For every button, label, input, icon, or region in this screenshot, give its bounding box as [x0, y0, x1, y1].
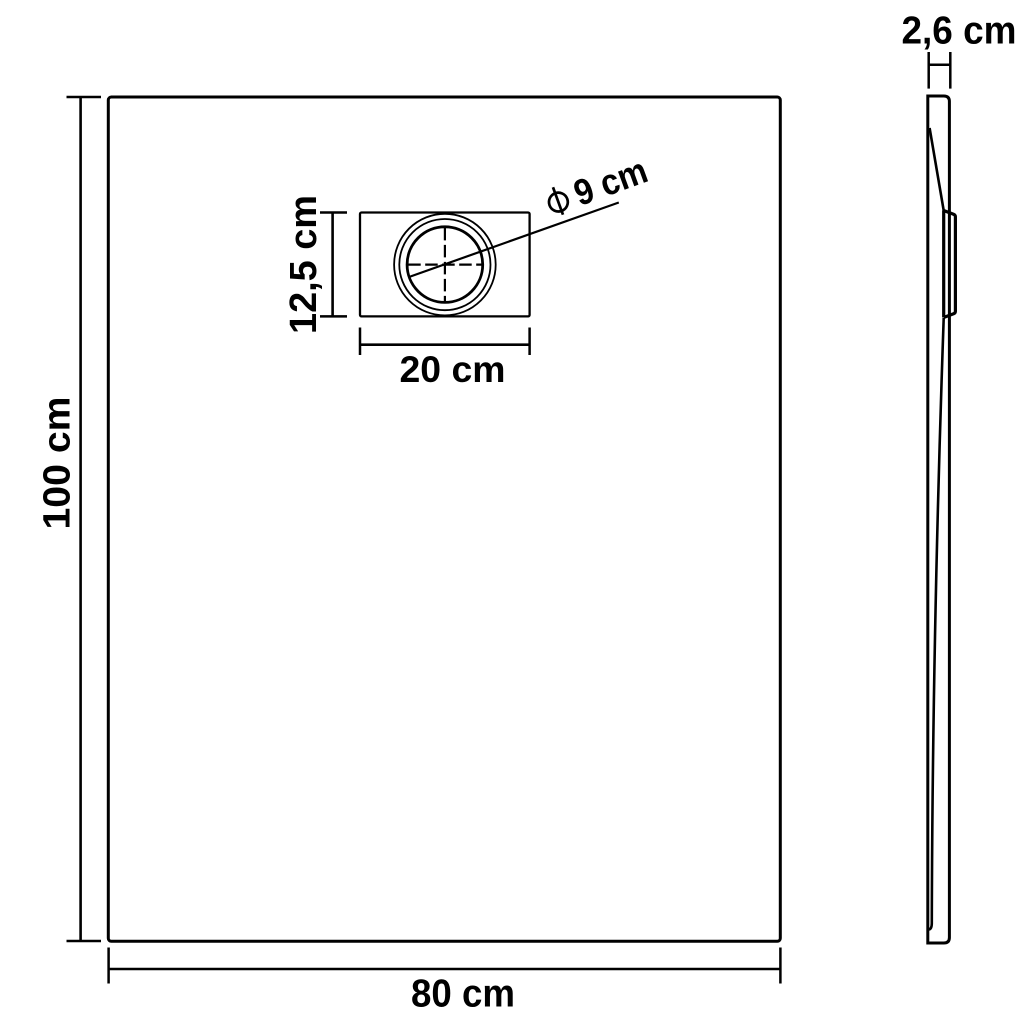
svg-text:2,6 cm: 2,6 cm [902, 10, 1017, 53]
svg-text:80 cm: 80 cm [411, 973, 515, 1016]
svg-text:12,5 cm: 12,5 cm [283, 195, 325, 334]
svg-text:20 cm: 20 cm [400, 348, 506, 390]
svg-text:100 cm: 100 cm [37, 397, 79, 530]
